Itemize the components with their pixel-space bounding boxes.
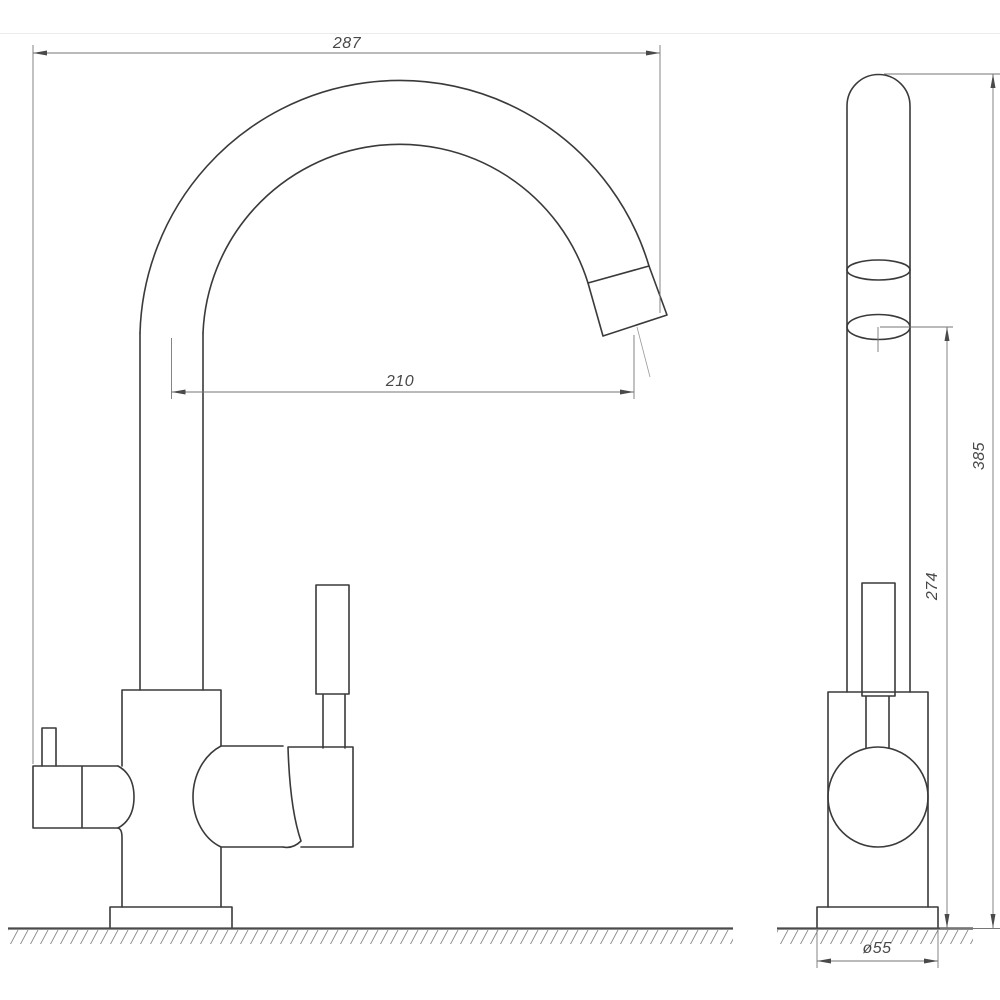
cartridge-dome	[193, 746, 283, 847]
faucet-technical-drawing: 287 210 385 274 ø55	[0, 0, 1000, 1000]
base-plate-side	[817, 907, 938, 928]
ground-hatch-left	[8, 930, 733, 944]
filter-knob	[42, 728, 56, 766]
dim-label-overall-height: 385	[971, 442, 988, 470]
dim-label-spout-reach: 210	[385, 373, 414, 390]
handle-collar	[283, 747, 353, 847]
dim-label-outlet-height: 274	[924, 572, 941, 601]
base-plate-front	[110, 907, 232, 928]
handle-lever-front	[316, 585, 349, 748]
body-side	[828, 692, 928, 907]
drawing-canvas: 287 210 385 274 ø55	[0, 0, 1000, 1000]
ext-oblique-210	[637, 327, 650, 377]
body-lower	[118, 828, 221, 907]
filter-valve-block	[33, 766, 118, 828]
dimension-annotations: 287 210 385 274 ø55	[33, 35, 1000, 968]
faucet-front-view	[33, 80, 667, 928]
dim-label-overall-width: 287	[332, 35, 362, 52]
ground-surface	[8, 929, 973, 945]
aerator-ellipse-upper	[847, 260, 910, 280]
body-upper	[122, 690, 221, 766]
riser-tube-side	[847, 75, 910, 693]
aerator-tip	[588, 266, 667, 336]
spout-inner-arc	[203, 144, 588, 333]
faucet-side-view	[817, 75, 938, 929]
cartridge-ball-side	[828, 747, 928, 847]
handle-lever-side	[862, 583, 895, 748]
dim-label-base-diameter: ø55	[862, 940, 891, 957]
spout-outer-arc	[140, 80, 649, 333]
filter-valve-bulge	[118, 766, 134, 828]
